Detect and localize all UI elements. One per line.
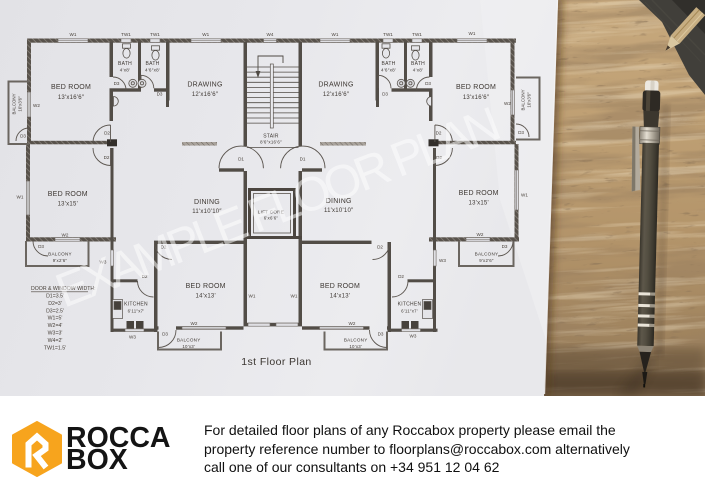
svg-text:W3: W3	[129, 335, 136, 340]
svg-text:W1: W1	[70, 32, 77, 37]
svg-text:BALCONY: BALCONY	[475, 252, 499, 257]
svg-text:BATH: BATH	[118, 61, 132, 67]
svg-text:BALCONY: BALCONY	[344, 338, 368, 343]
svg-text:14'x13': 14'x13'	[330, 294, 350, 300]
svg-text:W1: W1	[17, 195, 24, 200]
svg-text:BED ROOM: BED ROOM	[320, 283, 360, 290]
svg-text:D3: D3	[425, 81, 431, 86]
svg-text:W1=5': W1=5'	[48, 316, 63, 322]
svg-text:12'x16'6″: 12'x16'6″	[323, 92, 350, 98]
svg-text:10'x3'6″: 10'x3'6″	[527, 92, 532, 108]
svg-text:10'x3': 10'x3'	[182, 344, 195, 349]
svg-text:D3: D3	[518, 130, 524, 135]
svg-text:BED ROOM: BED ROOM	[456, 84, 496, 91]
svg-text:D2: D2	[398, 274, 404, 279]
svg-text:D3: D3	[378, 332, 384, 337]
svg-text:KITCHEN: KITCHEN	[398, 302, 422, 308]
svg-text:W3: W3	[439, 258, 446, 263]
svg-text:12'x16'6″: 12'x16'6″	[192, 92, 219, 98]
svg-text:W1: W1	[202, 32, 209, 37]
svg-text:D3: D3	[114, 81, 120, 86]
svg-text:TW1=1.5': TW1=1.5'	[44, 345, 66, 351]
svg-text:D2: D2	[104, 131, 110, 136]
svg-text:D2=3': D2=3'	[48, 301, 62, 307]
svg-text:6'11″x7': 6'11″x7'	[128, 309, 145, 314]
svg-text:BATH: BATH	[382, 61, 396, 67]
svg-text:9'x2'6″: 9'x2'6″	[479, 258, 494, 263]
svg-text:TW1: TW1	[383, 32, 393, 37]
svg-text:13'x15': 13'x15'	[58, 202, 78, 208]
svg-text:D3: D3	[38, 244, 44, 249]
svg-text:D2: D2	[104, 155, 110, 160]
svg-text:6'11″x7': 6'11″x7'	[401, 309, 418, 314]
svg-text:BALCONY: BALCONY	[177, 338, 201, 343]
svg-text:BATH: BATH	[411, 61, 425, 67]
svg-text:DRAWING: DRAWING	[318, 82, 353, 89]
svg-text:10'x3': 10'x3'	[349, 344, 362, 349]
svg-text:W1: W1	[521, 193, 528, 198]
svg-text:W2: W2	[62, 232, 69, 237]
svg-text:D2: D2	[377, 244, 383, 249]
svg-text:BATH: BATH	[146, 61, 160, 67]
svg-text:W4: W4	[267, 32, 274, 37]
svg-text:D1: D1	[238, 157, 244, 162]
svg-text:D3: D3	[20, 134, 26, 139]
svg-text:4'x8': 4'x8'	[120, 68, 130, 73]
svg-text:W1: W1	[469, 31, 476, 36]
svg-text:W2: W2	[504, 101, 511, 106]
svg-text:TW1: TW1	[121, 32, 131, 37]
svg-text:BED ROOM: BED ROOM	[459, 190, 499, 197]
svg-text:D3: D3	[162, 332, 168, 337]
svg-text:W4=2': W4=2'	[48, 338, 63, 344]
svg-text:W3=3': W3=3'	[48, 331, 63, 337]
svg-text:BED ROOM: BED ROOM	[186, 283, 226, 290]
svg-text:13'x16'6″: 13'x16'6″	[58, 95, 85, 101]
svg-text:W1: W1	[249, 294, 256, 299]
svg-text:DRAWING: DRAWING	[187, 82, 222, 89]
svg-text:1st Floor Plan: 1st Floor Plan	[241, 356, 311, 368]
svg-text:D3: D3	[502, 244, 508, 249]
svg-text:W3: W3	[410, 334, 417, 339]
svg-text:D3=2.5': D3=2.5'	[46, 308, 64, 314]
svg-text:W1: W1	[332, 32, 339, 37]
svg-text:KITCHEN: KITCHEN	[124, 302, 148, 308]
svg-text:14'x13': 14'x13'	[196, 294, 216, 300]
svg-text:BALCONY: BALCONY	[521, 89, 526, 110]
svg-text:TW1: TW1	[412, 32, 422, 37]
svg-text:8'6″x16'6″: 8'6″x16'6″	[260, 140, 282, 145]
svg-text:D3: D3	[382, 92, 388, 97]
svg-text:BALCONY: BALCONY	[12, 93, 17, 114]
svg-text:BED ROOM: BED ROOM	[51, 84, 91, 91]
svg-text:W2: W2	[33, 103, 40, 108]
svg-text:BED ROOM: BED ROOM	[48, 191, 88, 198]
svg-text:D3: D3	[157, 92, 163, 97]
svg-text:4'6″x8': 4'6″x8'	[381, 68, 396, 73]
svg-text:10'x3'6″: 10'x3'6″	[18, 96, 23, 112]
svg-text:BALCONY: BALCONY	[48, 252, 72, 257]
svg-text:4'x8': 4'x8'	[413, 68, 423, 73]
svg-text:W2: W2	[349, 321, 356, 326]
svg-text:4'6″x8': 4'6″x8'	[145, 68, 160, 73]
svg-text:W1: W1	[291, 294, 298, 299]
svg-text:D1: D1	[300, 157, 306, 162]
svg-text:W2=4': W2=4'	[48, 323, 63, 329]
svg-text:W2: W2	[477, 232, 484, 237]
svg-text:13'x15': 13'x15'	[469, 201, 489, 207]
svg-text:W2: W2	[191, 321, 198, 326]
svg-text:TW1: TW1	[150, 32, 160, 37]
